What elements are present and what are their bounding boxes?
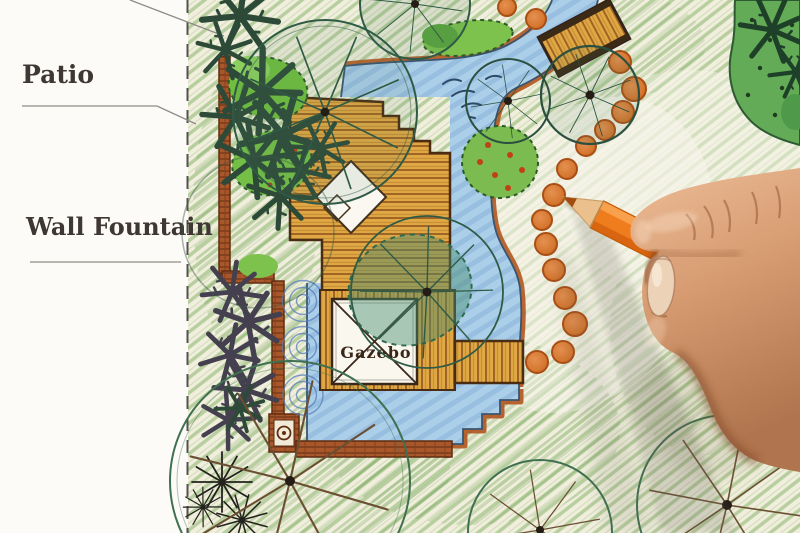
landscape-plan-photo: Patio Wall Fountain Gazebo (0, 0, 800, 533)
boardwalk (455, 341, 523, 383)
label-gazebo: Gazebo (340, 343, 411, 362)
berry-shrub (462, 126, 538, 198)
stone-at-pencil-tip (543, 184, 565, 206)
plan-drawing: Patio Wall Fountain Gazebo (0, 0, 800, 533)
label-wall-fountain: Wall Fountain (25, 212, 213, 241)
label-patio: Patio (22, 60, 94, 89)
